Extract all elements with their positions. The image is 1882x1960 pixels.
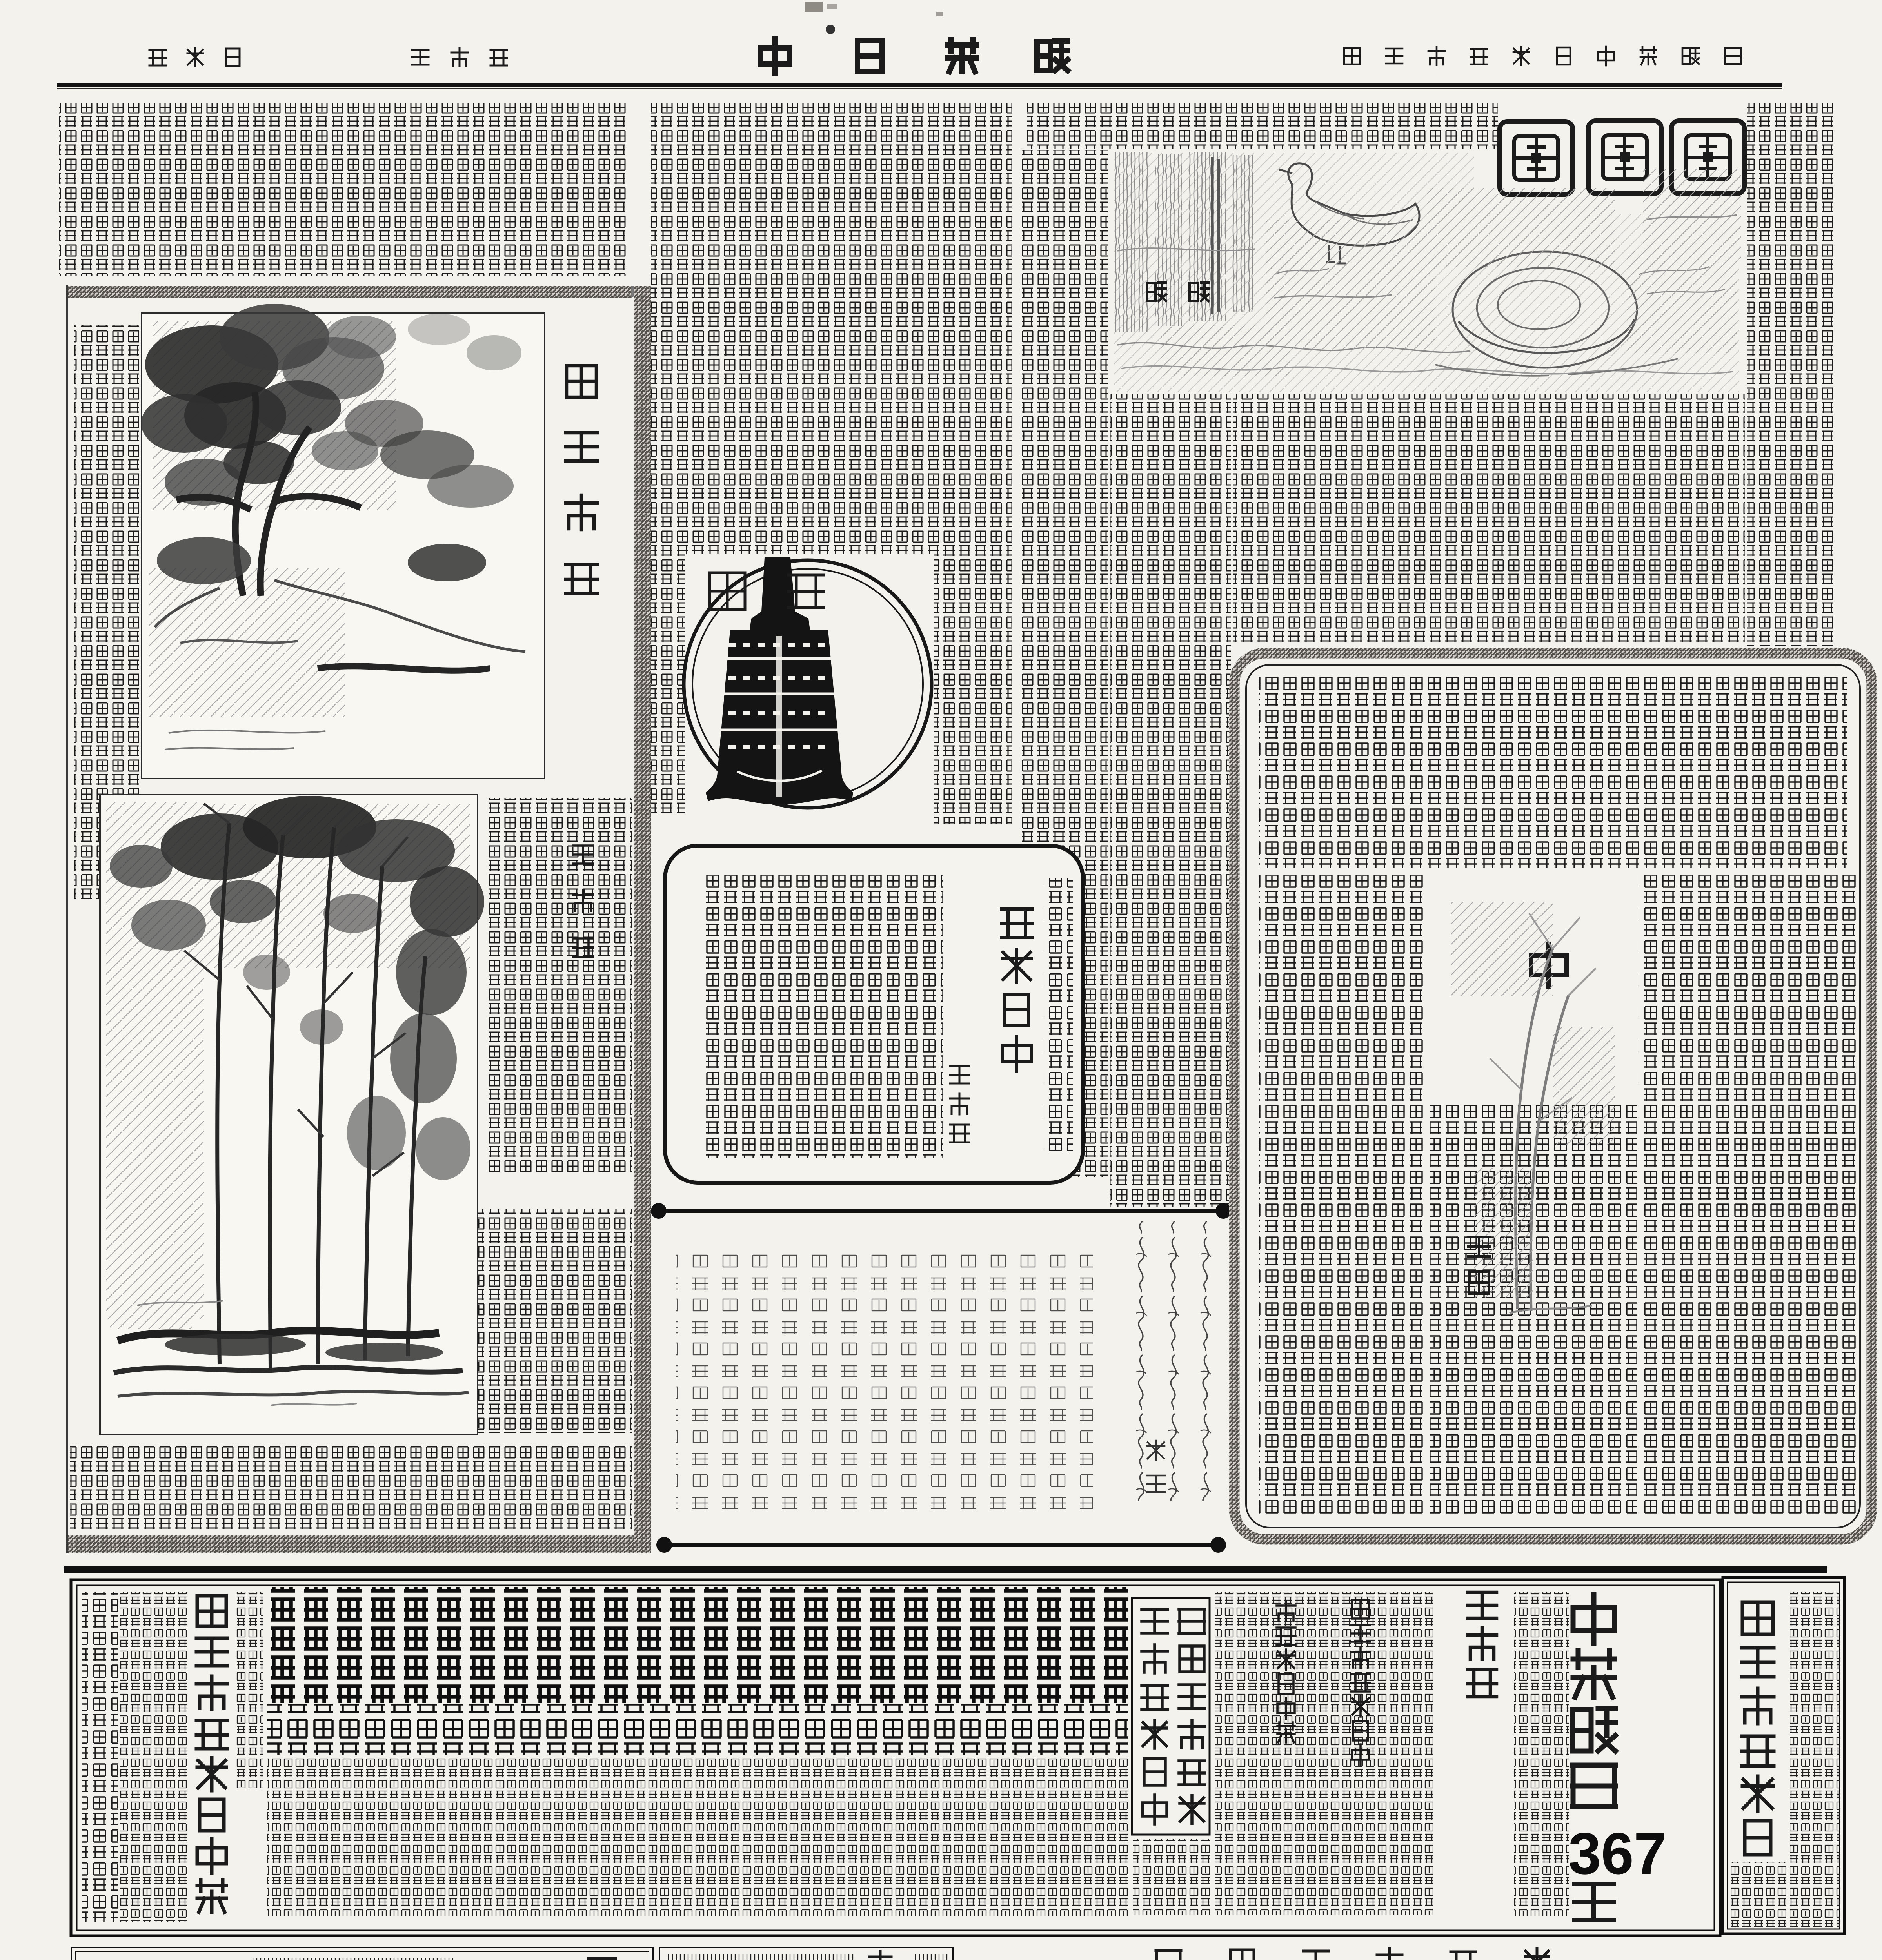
svg-text:367: 367	[1568, 1820, 1666, 1886]
